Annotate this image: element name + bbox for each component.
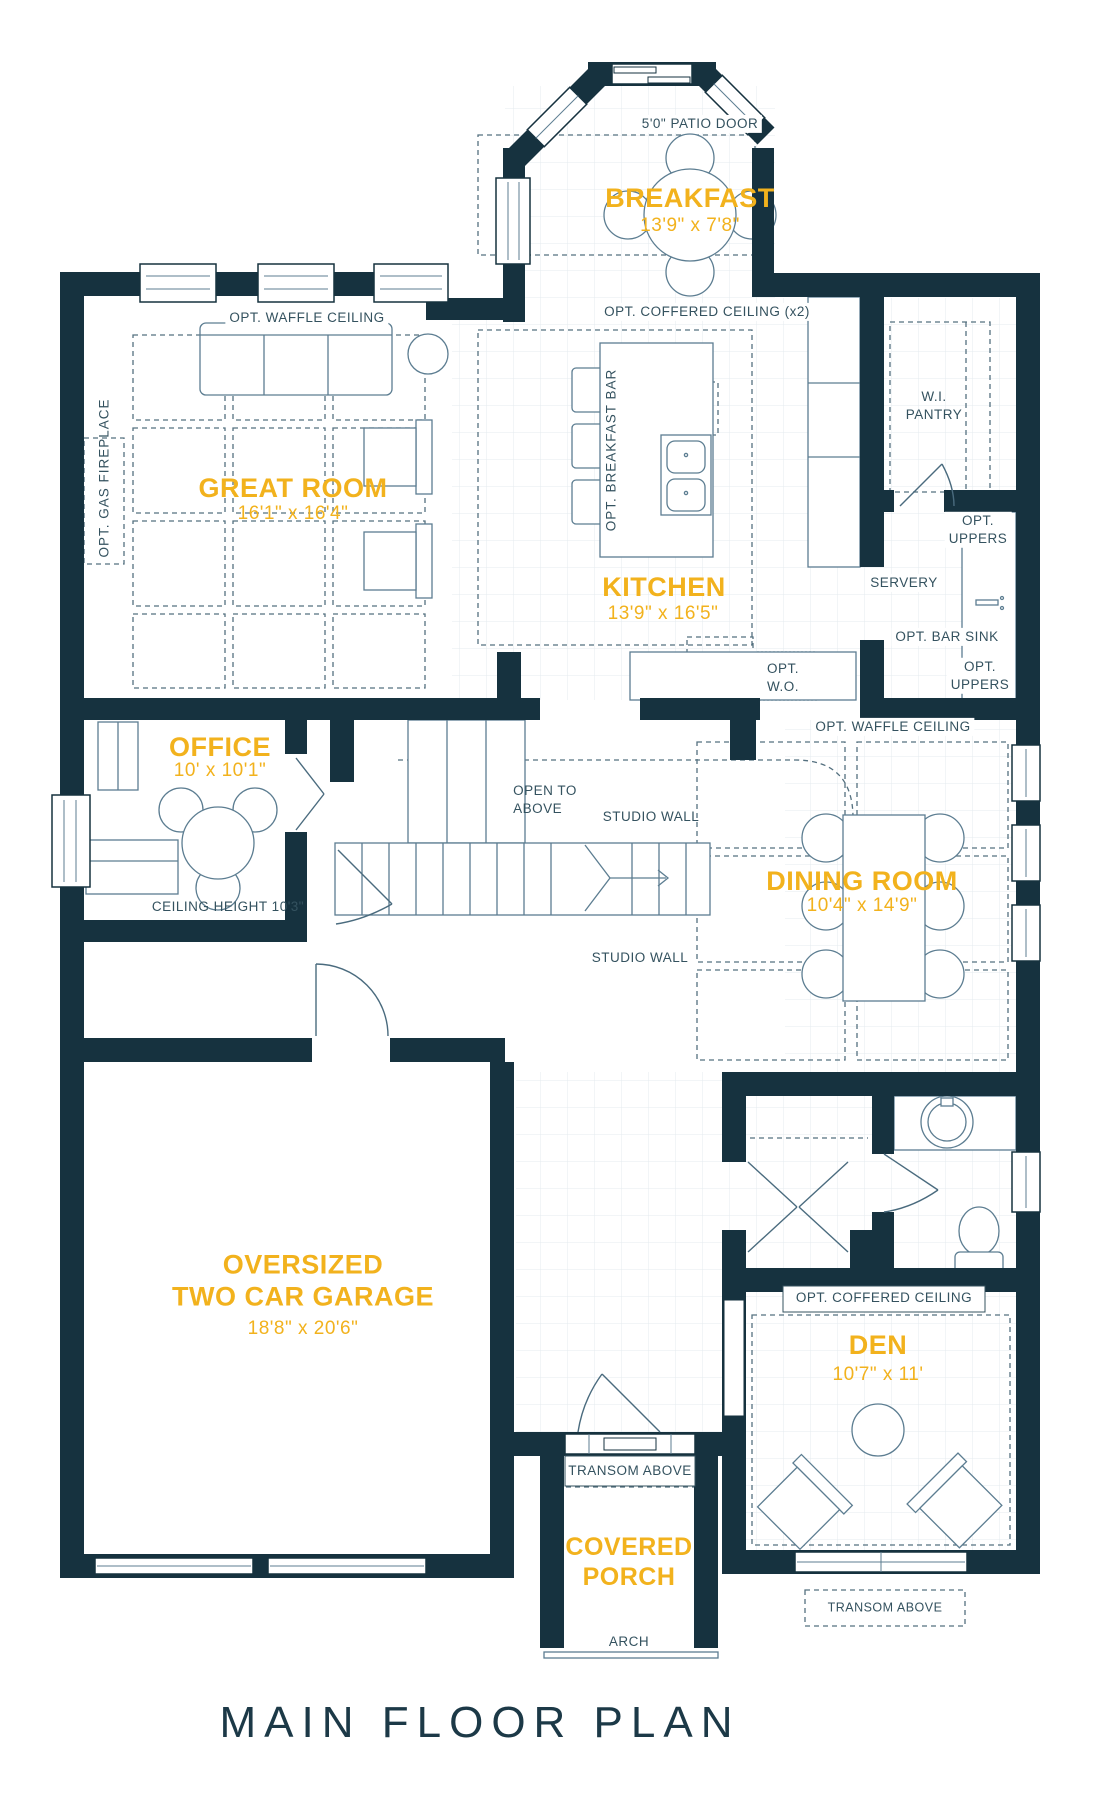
servery-label: SERVERY — [866, 574, 942, 592]
transom-above-porch-label: TRANSOM ABOVE — [568, 1462, 692, 1480]
side-table — [408, 334, 448, 374]
garage-label: OVERSIZED TWO CAR GARAGE — [172, 1249, 434, 1314]
gas-fireplace-label: OPT. GAS FIREPLACE — [97, 398, 112, 557]
studio-wall-label-2: STUDIO WALL — [592, 949, 689, 967]
coffered-ceiling-den-label: OPT. COFFERED CEILING — [796, 1289, 972, 1307]
ceiling-height-label: CEILING HEIGHT 10'3" — [152, 898, 304, 916]
arch-label: ARCH — [609, 1633, 649, 1651]
floor-plan-page: 5'0" PATIO DOOR BREAKFAST 13'9" x 7'8" O… — [0, 0, 1100, 1810]
great-room-sofa — [200, 323, 392, 395]
den-dims: 10'7" x 11' — [833, 1362, 924, 1388]
great-room-label: GREAT ROOM — [199, 472, 388, 504]
armchair — [364, 420, 432, 598]
wi-pantry-label: W.I. PANTRY — [906, 388, 963, 424]
opt-wo-label: OPT. W.O. — [763, 660, 803, 696]
porch-step — [544, 1652, 718, 1658]
studio-wall-label-1: STUDIO WALL — [603, 808, 700, 826]
waffle-ceiling-dining-label: OPT. WAFFLE CEILING — [811, 718, 974, 736]
kitchen-label: KITCHEN — [602, 571, 726, 603]
kitchen-dims: 13'9" x 16'5" — [608, 601, 719, 627]
opt-bar-sink-label: OPT. BAR SINK — [891, 628, 1002, 646]
den-label: DEN — [849, 1329, 908, 1361]
opt-uppers-label-1: OPT. UPPERS — [945, 512, 1012, 548]
open-to-above-label: OPEN TO ABOVE — [513, 782, 577, 818]
great-room-dims: 16'1" x 16'4" — [238, 501, 349, 527]
transom-above-den-label: TRANSOM ABOVE — [828, 1600, 943, 1617]
office-dims: 10' x 10'1" — [174, 758, 266, 784]
waffle-ceiling-great-label: OPT. WAFFLE CEILING — [225, 309, 388, 327]
breakfast-bar-label: OPT. BREAKFAST BAR — [604, 369, 619, 532]
dining-room-dims: 10'4" x 14'9" — [807, 893, 918, 919]
breakfast-room-label: BREAKFAST — [605, 182, 775, 214]
covered-porch-label: COVERED PORCH — [565, 1532, 692, 1592]
opt-uppers-label-2: OPT. UPPERS — [947, 658, 1014, 694]
page-title: MAIN FLOOR PLAN — [220, 1698, 741, 1748]
garage-dims: 18'8" x 20'6" — [248, 1316, 359, 1342]
patio-door-label: 5'0" PATIO DOOR — [638, 115, 762, 133]
coffered-ceiling-x2-label: OPT. COFFERED CEILING (x2) — [600, 303, 814, 321]
breakfast-room-dims: 13'9" x 7'8" — [640, 213, 740, 239]
